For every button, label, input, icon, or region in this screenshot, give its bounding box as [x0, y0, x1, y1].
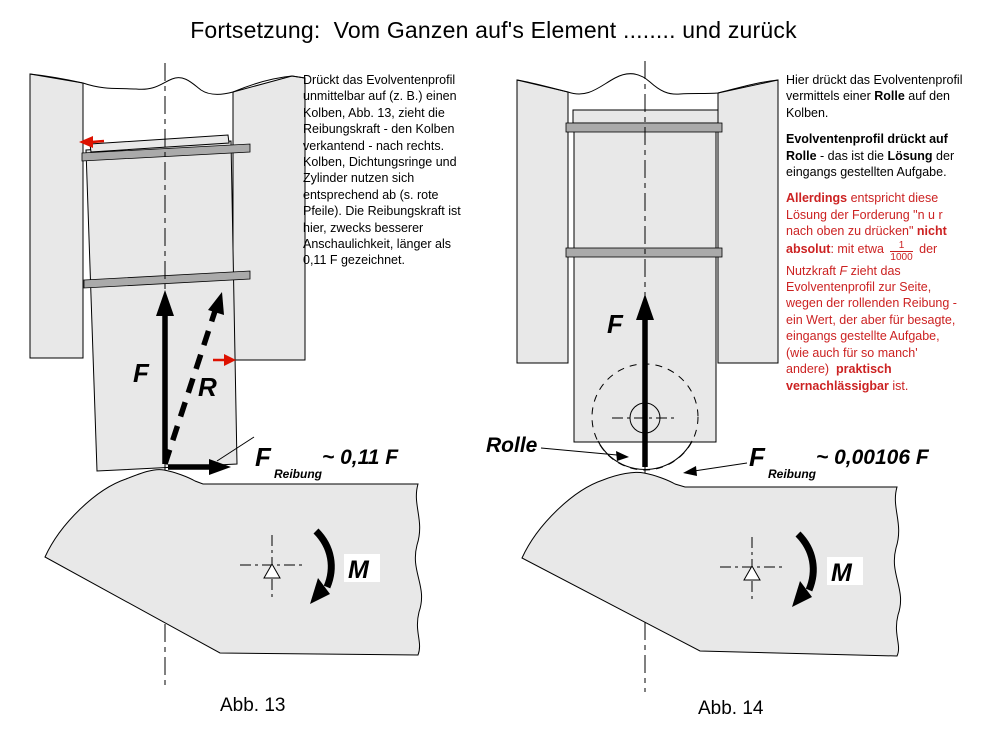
- page: { "title": "Fortsetzung: Vom Ganzen auf'…: [0, 0, 987, 729]
- text-line: (wie auch für so manch': [786, 345, 986, 361]
- friction-label-value: ~ 0,11 F: [322, 446, 399, 469]
- text-run: vernachlässigbar: [786, 379, 889, 393]
- text-line: eingangs gestellte Aufgabe,: [786, 328, 986, 344]
- text-run: eingangs gestellten Aufgabe.: [786, 165, 947, 179]
- text-run: wegen der rollenden Reibung -: [786, 296, 957, 310]
- text-line: Rolle - das ist die Lösung der: [786, 148, 986, 164]
- text-run: - das ist die: [817, 149, 888, 163]
- moment-label: M: [348, 556, 370, 584]
- text-run: Rolle: [786, 149, 817, 163]
- friction-leader-arrowhead-icon: [683, 466, 697, 476]
- text-run: Pfeile). Die Reibungskraft ist: [303, 204, 461, 218]
- note-fig13: Drückt das Evolventenprofilunmittelbar a…: [303, 72, 499, 269]
- text-run: Lösung: [887, 149, 932, 163]
- friction-label-sub: Reibung: [768, 467, 817, 481]
- text-run: verkantend - nach rechts.: [303, 139, 444, 153]
- text-line: Kolben.: [786, 105, 986, 121]
- text-line: Allerdings entspricht diese: [786, 190, 986, 206]
- figure-caption: Abb. 14: [698, 698, 764, 719]
- text-run: F: [840, 264, 848, 278]
- force-label-f: F: [133, 358, 150, 388]
- text-line: Zylinder nutzen sich: [303, 170, 499, 186]
- text-run: auf den: [905, 89, 950, 103]
- cylinder-wall-right: [233, 76, 305, 360]
- friction-label-main: F: [255, 442, 272, 472]
- red-wear-arrow-tail-left: [92, 141, 104, 142]
- fraction: 11000: [890, 240, 912, 263]
- figure-caption: Abb. 13: [220, 695, 286, 716]
- text-run: Reibungskraft - den Kolben: [303, 122, 454, 136]
- text-line: Kolben, Dichtungsringe und: [303, 154, 499, 170]
- text-run: eingangs gestellte Aufgabe,: [786, 329, 940, 343]
- text-line: 0,11 F gezeichnet.: [303, 252, 499, 268]
- text-run: zieht das: [847, 264, 901, 278]
- text-line: Reibungskraft - den Kolben: [303, 121, 499, 137]
- text-run: hier, zwecks besserer: [303, 221, 423, 235]
- resultant-label-r: R: [198, 372, 217, 402]
- cylinder-wall-left: [30, 74, 83, 358]
- cylinder-wall-left: [517, 80, 568, 363]
- text-line: absolut: mit etwa 11000 der: [786, 240, 986, 263]
- text-line: wegen der rollenden Reibung -: [786, 295, 986, 311]
- text-run: : mit etwa: [830, 242, 887, 256]
- text-line: nach oben zu drücken" nicht: [786, 223, 986, 239]
- text-run: Kolben.: [786, 106, 828, 120]
- friction-label-value: ~ 0,00106 F: [816, 446, 930, 469]
- text-line: Lösung der Forderung "n u r: [786, 207, 986, 223]
- text-run: praktisch: [836, 362, 892, 376]
- text-line: Kolben, Abb. 13, zieht die: [303, 105, 499, 121]
- text-line: Anschaulichkeit, länger als: [303, 236, 499, 252]
- text-run: nicht: [917, 224, 947, 238]
- text-run: Kolben, Abb. 13, zieht die: [303, 106, 445, 120]
- text-run: Evolventenprofil drückt auf: [786, 132, 948, 146]
- text-line: ein Wert, der aber für besagte,: [786, 312, 986, 328]
- text-run: Evolventenprofil zur Seite,: [786, 280, 931, 294]
- text-run: Hier drückt das Evolventenprofil: [786, 73, 962, 87]
- piston-ring-bottom: [566, 248, 722, 257]
- text-line: Evolventenprofil zur Seite,: [786, 279, 986, 295]
- text-line: Evolventenprofil drückt auf: [786, 131, 986, 147]
- roller-label: Rolle: [486, 434, 538, 457]
- text-run: Kolben, Dichtungsringe und: [303, 155, 457, 169]
- note-fig14: Hier drückt das Evolventenprofilvermitte…: [786, 72, 986, 394]
- moment-label: M: [831, 559, 853, 587]
- text-run: entsprechend ab (s. rote: [303, 188, 439, 202]
- text-run: nach oben zu drücken": [786, 224, 917, 238]
- text-line: vernachlässigbar ist.: [786, 378, 986, 394]
- text-run: Nutzkraft: [786, 264, 840, 278]
- text-line: eingangs gestellten Aufgabe.: [786, 164, 986, 180]
- friction-label-leader: [694, 463, 747, 471]
- text-run: absolut: [786, 242, 830, 256]
- text-run: Zylinder nutzen sich: [303, 171, 414, 185]
- friction-label-sub: Reibung: [274, 467, 323, 481]
- text-line: vermittels einer Rolle auf den: [786, 88, 986, 104]
- text-line: Pfeile). Die Reibungskraft ist: [303, 203, 499, 219]
- text-run: Drückt das Evolventenprofil: [303, 73, 455, 87]
- text-run: ein Wert, der aber für besagte,: [786, 313, 955, 327]
- friction-label-main: F: [749, 442, 766, 472]
- text-run: der: [916, 242, 938, 256]
- text-run: Rolle: [874, 89, 905, 103]
- text-run: entspricht diese: [847, 191, 938, 205]
- text-line: Hier drückt das Evolventenprofil: [786, 72, 986, 88]
- text-line: hier, zwecks besserer: [303, 220, 499, 236]
- text-line: unmittelbar auf (z. B.) einen: [303, 88, 499, 104]
- text-line: andere) praktisch: [786, 361, 986, 377]
- text-run: 0,11 F gezeichnet.: [303, 253, 405, 267]
- text-line: entsprechend ab (s. rote: [303, 187, 499, 203]
- text-run: vermittels einer: [786, 89, 874, 103]
- text-run: der: [933, 149, 955, 163]
- text-run: (wie auch für so manch': [786, 346, 918, 360]
- text-line: Drückt das Evolventenprofil: [303, 72, 499, 88]
- text-run: ist.: [889, 379, 908, 393]
- text-run: Anschaulichkeit, länger als: [303, 237, 451, 251]
- text-run: Lösung der Forderung "n u r: [786, 208, 943, 222]
- text-run: andere): [786, 362, 836, 376]
- cylinder-wall-right: [718, 80, 778, 363]
- text-run: Allerdings: [786, 191, 847, 205]
- text-line: verkantend - nach rechts.: [303, 138, 499, 154]
- text-line: Nutzkraft F zieht das: [786, 263, 986, 279]
- force-label-f: F: [607, 309, 624, 339]
- roller-leader-arrowhead-icon: [616, 451, 629, 461]
- piston-ring-top: [566, 123, 722, 132]
- text-run: unmittelbar auf (z. B.) einen: [303, 89, 457, 103]
